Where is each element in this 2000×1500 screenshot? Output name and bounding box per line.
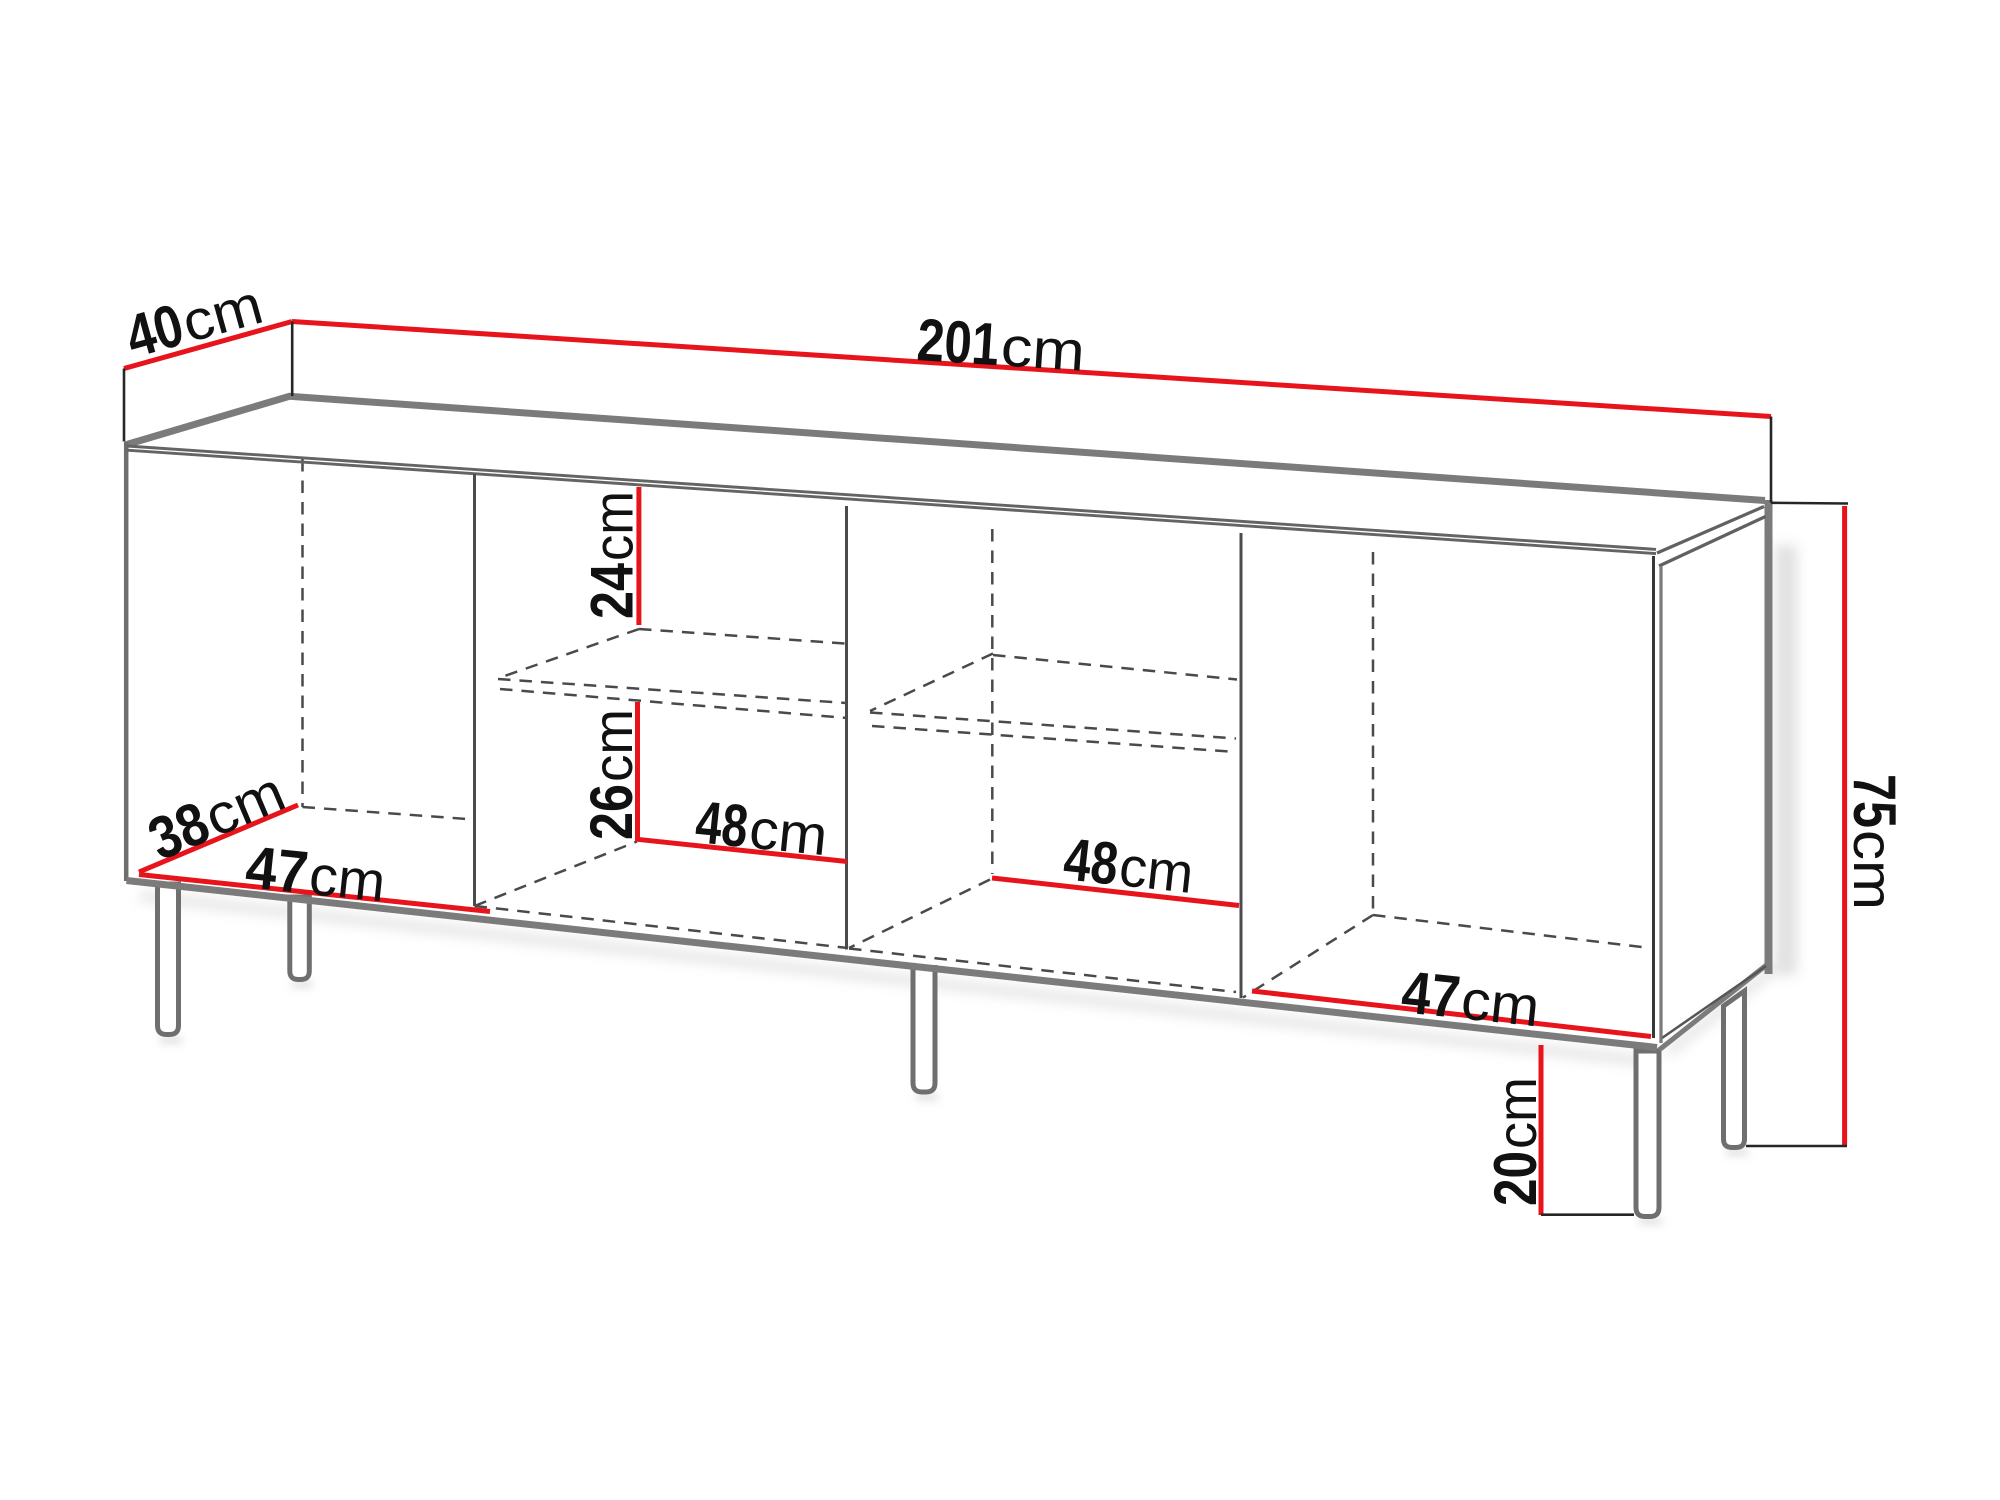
svg-text:75cm: 75cm (1841, 774, 1908, 910)
svg-text:24cm: 24cm (579, 491, 646, 619)
svg-text:40cm: 40cm (119, 269, 270, 370)
svg-text:47cm: 47cm (1399, 958, 1543, 1039)
svg-text:20cm: 20cm (1482, 1077, 1549, 1206)
svg-text:47cm: 47cm (243, 833, 389, 914)
svg-text:48cm: 48cm (693, 788, 831, 868)
svg-text:48cm: 48cm (1061, 825, 1197, 906)
svg-text:201cm: 201cm (915, 306, 1087, 384)
svg-text:26cm: 26cm (578, 709, 645, 840)
